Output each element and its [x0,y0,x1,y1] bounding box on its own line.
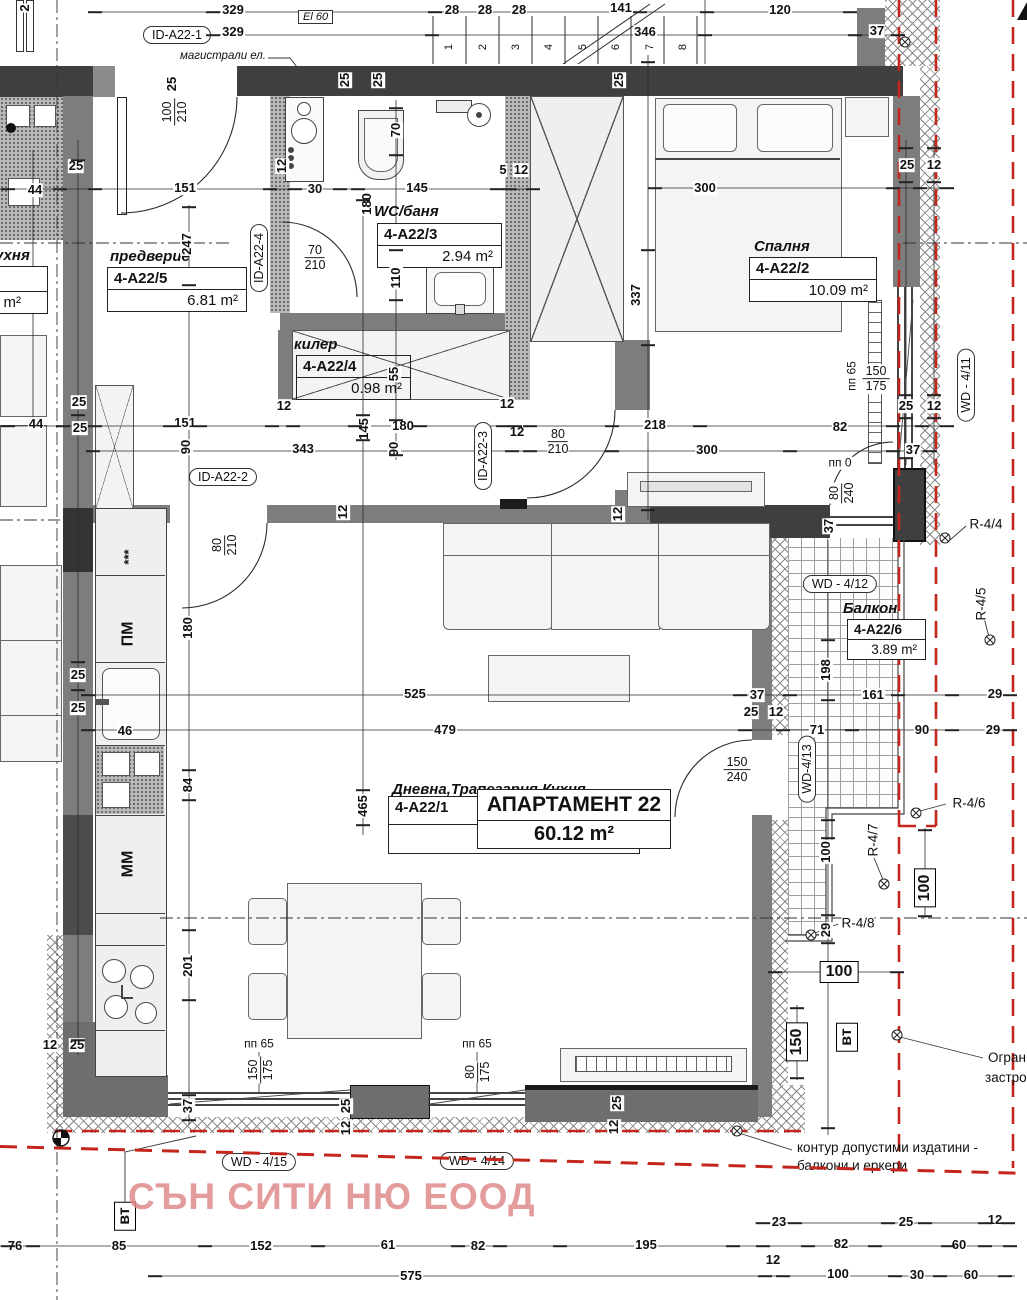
dimension-tick [790,1007,804,1009]
reference-oval: WD - 4/15 [222,1153,296,1171]
dimension-label: 71 [809,723,825,737]
dimension-tick [821,914,835,916]
dimension-tick [389,107,403,109]
dimension-tick [641,509,655,511]
dimension-tick [413,425,427,427]
dimension-tick [1001,1222,1015,1224]
dimension-label: 25 [338,72,352,88]
dimension-tick [389,454,403,456]
dimension-label: 120 [768,3,792,17]
dimension-label: 29 [819,922,833,938]
dimension-label: пп 65 [243,1038,275,1051]
dimension-tick [605,450,619,452]
room-table-hall: 4-A22/5 6.81 m² [107,267,247,312]
note-limit-1: Огран [988,1050,1026,1065]
dimension-tick [648,187,662,189]
dimension-tick [263,188,277,190]
dimension-label: 44 [27,183,43,197]
dimension-label: 141 [609,1,633,15]
room-table-wc: 4-A22/3 2.94 m² [377,223,502,268]
dimension-tick [891,34,905,36]
dimension-tick [845,729,859,731]
dimension-label: 5 [498,163,507,177]
dimension-label: 161 [861,688,885,702]
room-area: 6.81 m² [108,290,246,311]
dimension-tick [425,34,439,36]
room-table-bedroom: 4-A22/2 10.09 m² [749,257,877,302]
label-mm: ММ [121,850,138,879]
room-name-hall: предверие [110,248,190,265]
room-id: 4-A22/5 [108,268,246,290]
dimension-tick [71,1039,85,1041]
dimension-tick [918,829,932,831]
dimension-label: 180 [391,419,415,433]
dimension-label: 525 [403,687,427,701]
dimension-tick [945,729,959,731]
dimension-label: пп 65 [461,1038,493,1051]
dimension-tick [848,34,862,36]
dimension-label: 300 [695,443,719,457]
dimension-tick [182,206,196,208]
dimension-label: 90 [179,439,193,455]
dimension-tick [356,199,370,201]
dimension-tick [605,425,619,427]
railing-marker: R-4/6 [952,796,985,811]
dimension-tick [356,439,370,441]
dimension-label: 30 [307,182,323,196]
dimension-tick [553,1245,567,1247]
dimension-label: 329 [221,25,245,39]
dimension-tick [700,11,714,13]
dimension-tick [88,188,102,190]
dimension-tick [389,154,403,156]
dimension-tick [821,699,835,701]
neighbor-room-name: Кухня [0,247,30,264]
dimension-tick [899,457,913,459]
dimension-label: 29 [985,723,1001,737]
dimension-tick [88,425,102,427]
dimension-label: 12 [987,1213,1003,1227]
dimension-tick [148,1275,162,1277]
neighbor-room-area: 8 m² [0,292,47,313]
dimension-tick [182,999,196,1001]
dimension-label: 25 [71,395,87,409]
dimension-fraction: 150175 [246,1057,276,1084]
stair-step-number: 3 [510,44,522,50]
dimension-label: 343 [291,442,315,456]
stair-step-number: 5 [577,44,589,50]
dimension-tick [182,1119,196,1121]
dimension-label: 37 [749,688,765,702]
dimension-tick [698,34,712,36]
dimension-fraction: 80175 [463,1062,493,1083]
dimension-tick [71,689,85,691]
dimension-tick [693,425,707,427]
apartment-title: АПАРТАМЕНТ 22 [478,790,670,821]
dimension-tick [868,1245,882,1247]
dimension-tick [790,1077,804,1079]
dimension-label: 46 [117,724,133,738]
dimension-tick [71,414,85,416]
dimension-tick [526,188,540,190]
dimension-tick [978,1245,992,1247]
dimension-label: 12 [513,163,529,177]
dimension-label: 70 [389,122,403,138]
dimension-tick [288,188,302,190]
dimension-tick [508,425,522,427]
dimension-tick [783,450,797,452]
dimension-label: 25 [612,72,626,88]
dimension-tick [978,1222,992,1224]
dimension-tick [1,188,15,190]
dimension-tick [389,419,403,421]
dimension-label: 25 [72,421,88,435]
dimension-tick [998,1275,1012,1277]
dimension-tick [182,769,196,771]
dimension-tick [899,147,913,149]
dimension-tick [776,1275,790,1277]
dimension-label: 84 [181,777,195,793]
note-el60: El 60 [298,10,333,24]
neighbor-room-table: 8 m² [0,266,48,314]
dimension-tick [163,425,177,427]
dimension-fraction: 150175 [863,364,890,394]
dimension-label: 337 [629,283,643,307]
dimension-label: 25 [899,158,915,172]
dimension-tick [182,929,196,931]
dimension-label: 12 [607,1119,621,1135]
dimension-label: пп 65 [846,360,859,392]
dimension-label: 180 [360,192,374,216]
dimension-tick [843,11,857,13]
dimension-label: 30 [909,1268,925,1282]
dimension-label: 25 [70,701,86,715]
railing-marker: R-4/7 [866,823,881,856]
dimension-label: 82 [832,420,848,434]
stair-step-number: 8 [677,44,689,50]
reference-oval: WD - 4/11 [957,348,975,421]
dimension-tick [56,425,70,427]
dimension-tick [81,694,95,696]
dimension-tick [1003,694,1017,696]
room-area: 3.89 m² [848,640,925,659]
dimension-tick [523,450,537,452]
dimension-label: 12 [499,397,515,411]
reference-oval: ID-A22-2 [189,468,257,486]
dimension-fraction: 80210 [548,427,569,457]
dimension-label: 12 [509,425,525,439]
dimension-tick [758,1275,772,1277]
dimension-tick [890,971,904,973]
dimension-tick [206,34,220,36]
dimension-tick [193,425,207,427]
dimension-tick [286,425,300,427]
room-name-storage: килер [294,336,337,353]
dimension-tick [389,249,403,251]
room-name-bedroom: Спалня [754,238,810,255]
dimension-label: 25 [898,1215,914,1229]
floor-plan-canvas: предверие 4-A22/5 6.81 m² WC/баня 4-A22/… [0,0,1027,1300]
dimension-label: 145 [357,417,371,441]
reference-oval: WD - 4/12 [803,575,877,593]
dimension-fraction: 80240 [827,483,857,504]
reference-oval: WD-4/13 [798,735,816,802]
dimension-tick [886,450,900,452]
dimension-label: 29 [987,687,1003,701]
dimension-label: 55 [387,366,401,382]
dimension-label: 218 [643,418,667,432]
dimension-tick [198,1245,212,1247]
dimension-tick [923,450,937,452]
dimension-tick [206,11,220,13]
dimension-label: 12 [42,1038,58,1052]
dimension-label: 100 [826,1267,850,1281]
dimension-tick [493,1245,507,1247]
room-area: 10.09 m² [750,280,876,301]
dimension-tick [182,799,196,801]
dimension-label: 25 [68,159,84,173]
dimension-label: 25 [898,399,914,413]
dimension-tick [641,61,655,63]
dimension-fraction: 80210 [210,535,240,556]
dimension-label: 37 [905,443,921,457]
dimension-label: 151 [173,181,197,195]
dimension-label: 90 [914,723,930,737]
dimension-tick [356,789,370,791]
dimension-label: 479 [433,723,457,737]
dimension-tick [356,824,370,826]
railing-marker: R-4/8 [841,916,874,931]
dimension-label: 300 [693,181,717,195]
dimension-tick [523,425,537,427]
dimension-label: 12 [336,504,350,520]
dimension-tick [821,837,835,839]
dimension-tick [776,729,790,731]
boxed-dimension: 100 [914,869,936,908]
dimension-tick [726,1245,740,1247]
reference-oval: ID-A22-1 [143,26,211,44]
dimension-label: 37 [181,1098,195,1114]
dimension-tick [81,729,95,731]
dimension-tick [821,942,835,944]
note-mains: магистрали ел. [180,50,266,62]
dimension-tick [927,147,941,149]
dimension-label: 28 [477,3,493,17]
dimension-label: 82 [470,1239,486,1253]
dimension-tick [641,344,655,346]
dimension-label: 25 [70,668,86,682]
boxed-dimension: 100 [820,961,859,983]
dimension-tick [941,1245,955,1247]
dimension-tick [888,1275,902,1277]
stair-step-number: 4 [543,44,555,50]
dimension-tick [428,11,442,13]
dimension-tick [913,187,927,189]
dimension-tick [927,181,941,183]
dimension-tick [821,1127,835,1129]
reference-oval: ID-A22-4 [250,224,268,292]
railing-marker: R-4/5 [974,587,989,620]
dimension-label: 12 [276,399,292,413]
dimension-tick [783,694,797,696]
dimension-tick [503,188,517,190]
dimension-tick [182,1094,196,1096]
dimension-label: 195 [634,1238,658,1252]
boxed-dimension: 150 [786,1023,808,1062]
dimension-tick [71,159,85,161]
dimension-tick [1003,729,1017,731]
dimension-label: 100 [819,840,833,864]
dimension-label: 465 [356,794,370,818]
dimension-label: 198 [819,658,833,682]
dimension-tick [933,1275,947,1277]
dimension-label: 12 [339,1120,353,1136]
dimension-tick [633,11,647,13]
dimension-label: 2 [18,3,32,12]
dimension-tick [927,394,941,396]
room-id: 4-A22/3 [378,224,501,246]
dimension-tick [333,188,347,190]
dimension-label: 61 [380,1238,396,1252]
dimension-tick [389,299,403,301]
dimension-tick [1003,1245,1017,1247]
dimension-label: 152 [249,1239,273,1253]
railing-marker: R-4/4 [969,517,1002,532]
dimension-tick [88,11,102,13]
dimension-label: 60 [963,1268,979,1282]
dimension-tick [915,425,929,427]
dimension-label: 12 [768,705,784,719]
dimension-tick [490,188,504,190]
dimension-tick [71,661,85,663]
dimension-label: 329 [221,3,245,17]
dimension-tick [918,1222,932,1224]
dimension-tick [768,971,782,973]
dimension-tick [788,1222,802,1224]
stair-step-number: 1 [443,44,455,50]
dimension-label: 247 [180,232,194,256]
dimension-label: 44 [28,417,44,431]
room-id: 4-A22/2 [750,258,876,280]
dimension-tick [940,187,954,189]
dimension-label: 12 [611,506,625,522]
dimension-tick [927,417,941,419]
dimension-label: 12 [926,158,942,172]
dimension-label: 25 [610,1095,624,1111]
dimension-tick [311,1245,325,1247]
dimension-tick [505,450,519,452]
dimension-tick [738,729,752,731]
dimension-tick [756,1245,770,1247]
dimension-label: 82 [833,1237,849,1251]
dimension-label: 37 [869,24,885,38]
dimension-tick [641,249,655,251]
dimension-label: 346 [633,25,657,39]
dimension-tick [899,417,913,419]
dimension-tick [881,1222,895,1224]
room-id: 4-A22/6 [848,620,925,640]
dimension-tick [886,425,900,427]
dimension-label: 575 [399,1269,423,1283]
dimension-fraction: 150240 [724,755,751,785]
dimension-tick [53,188,67,190]
dimension-fraction: 70210 [305,243,326,273]
dimension-tick [1,425,15,427]
reference-oval: WD - 4/14 [440,1152,514,1170]
dimension-label: 110 [389,267,403,290]
dimension-tick [26,1245,40,1247]
label-stars: *** [122,548,136,565]
dimension-label: 23 [771,1215,787,1229]
dimension-tick [756,1222,770,1224]
dimension-tick [265,425,279,427]
dimension-label: 85 [111,1239,127,1253]
apartment-title-box: АПАРТАМЕНТ 22 60.12 m² [477,789,671,849]
watermark: СЪН СИТИ НЮ ЕООД [128,1176,535,1218]
dimension-tick [899,181,913,183]
stair-step-number: 6 [610,44,622,50]
dimension-label: 25 [371,72,385,88]
dimension-tick [899,394,913,396]
note-contour-1: контур допустими издатини - [797,1140,978,1155]
dimension-tick [801,1245,815,1247]
dimension-tick [182,284,196,286]
dimension-label: 37 [822,518,836,534]
dimension-label: пп 0 [827,457,852,470]
dimension-label: 201 [181,954,195,978]
dimension-label: 145 [405,181,429,195]
stair-step-number: 2 [477,44,489,50]
room-name-balcony: Балкон [843,600,897,617]
dimension-tick [1,1245,15,1247]
apartment-area: 60.12 m² [478,821,670,848]
dimension-label: 25 [743,705,759,719]
dimension-label: 12 [926,399,942,413]
dimension-label: 180 [181,616,195,640]
room-table-balcony: 4-A22/6 3.89 m² [847,619,926,660]
stair-step-number: 7 [644,44,656,50]
dimension-fraction: 100210 [160,99,190,126]
dimension-tick [918,915,932,917]
dimension-label: 12 [275,158,289,174]
dimension-tick [451,1245,465,1247]
dimension-tick [945,694,959,696]
dimension-tick [86,450,100,452]
label-pm: ПМ [121,621,138,648]
dimension-tick [821,819,835,821]
reference-oval: ID-A22-3 [474,422,492,490]
dimension-label: 28 [511,3,527,17]
dimension-tick [821,639,835,641]
note-limit-2: застро [985,1070,1027,1085]
dimension-tick [733,694,747,696]
dimension-tick [351,188,365,190]
room-name-wc: WC/баня [374,203,439,220]
dimension-tick [891,694,905,696]
dimension-label: 12 [765,1253,781,1267]
boxed-dimension: вт [836,1022,858,1051]
dimension-tick [348,425,362,427]
dimension-tick [886,187,900,189]
dimension-label: 25 [339,1098,353,1114]
dimension-tick [940,425,954,427]
dimension-tick [356,414,370,416]
dimension-label: 25 [165,76,179,92]
dimension-label: 151 [173,416,197,430]
dimension-label: 28 [444,3,460,17]
